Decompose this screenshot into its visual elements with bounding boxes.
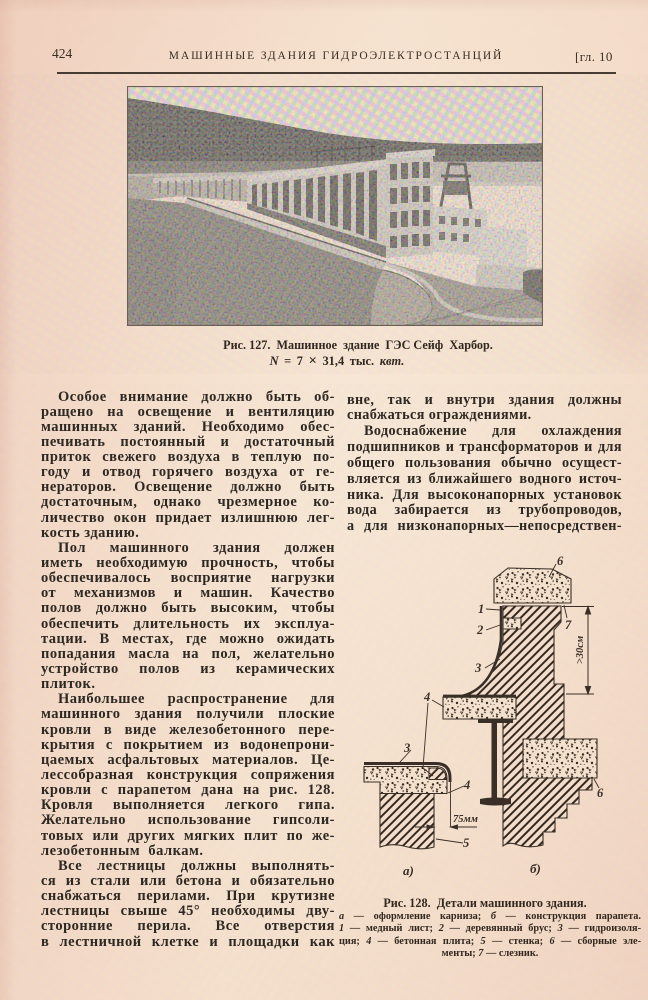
svg-text:7: 7 bbox=[565, 618, 572, 632]
svg-text:4: 4 bbox=[463, 778, 470, 792]
svg-text:а): а) bbox=[403, 863, 414, 878]
svg-text:1: 1 bbox=[478, 602, 484, 616]
svg-text:б): б) bbox=[530, 861, 541, 876]
svg-text:3: 3 bbox=[403, 741, 410, 755]
svg-text:>30см: >30см bbox=[575, 636, 586, 664]
svg-text:75мм: 75мм bbox=[453, 814, 478, 825]
svg-text:3: 3 bbox=[474, 661, 481, 675]
svg-text:4: 4 bbox=[423, 690, 430, 704]
svg-text:5: 5 bbox=[463, 836, 469, 850]
svg-text:6: 6 bbox=[557, 554, 564, 568]
svg-text:6: 6 bbox=[597, 786, 604, 800]
svg-text:2: 2 bbox=[476, 623, 483, 637]
